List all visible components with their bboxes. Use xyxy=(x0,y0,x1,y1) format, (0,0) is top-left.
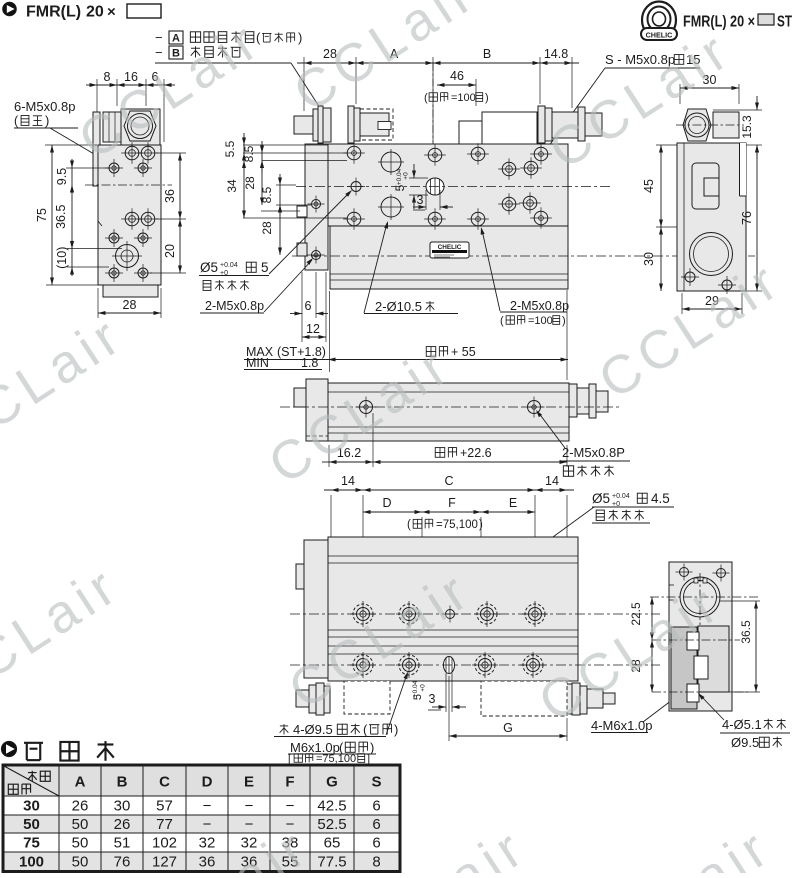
svg-text:127: 127 xyxy=(152,853,177,870)
svg-text:8.5: 8.5 xyxy=(242,145,256,162)
svg-text:28: 28 xyxy=(123,298,137,312)
svg-text:4.5: 4.5 xyxy=(651,491,670,506)
svg-text:C: C xyxy=(159,774,170,791)
svg-text:F: F xyxy=(285,774,294,791)
svg-text:6: 6 xyxy=(372,835,380,852)
svg-text:75: 75 xyxy=(23,835,40,852)
svg-text:): ) xyxy=(45,113,49,128)
svg-text:20: 20 xyxy=(86,4,104,21)
svg-text:57: 57 xyxy=(156,798,173,815)
svg-text:+0.04: +0.04 xyxy=(220,262,238,269)
svg-text:28: 28 xyxy=(243,176,257,190)
svg-text:5.5: 5.5 xyxy=(223,140,237,157)
svg-text:FMR(L): FMR(L) xyxy=(26,4,81,21)
svg-text:26: 26 xyxy=(114,816,131,833)
svg-text:=100: =100 xyxy=(451,92,476,104)
svg-text:−: − xyxy=(155,30,163,45)
svg-text:28: 28 xyxy=(260,221,274,235)
svg-text:ST: ST xyxy=(777,14,792,31)
svg-text:50: 50 xyxy=(72,853,89,870)
svg-text:76: 76 xyxy=(114,853,131,870)
svg-text:[: [ xyxy=(288,753,291,765)
svg-text:20: 20 xyxy=(163,244,177,258)
svg-text:36.5: 36.5 xyxy=(739,620,753,644)
svg-text:CHELIC: CHELIC xyxy=(438,244,462,251)
svg-text:MIN: MIN xyxy=(246,356,269,370)
svg-text:E: E xyxy=(244,774,254,791)
svg-text:52.5: 52.5 xyxy=(317,816,346,833)
svg-text:4-Ø9.5: 4-Ø9.5 xyxy=(293,722,333,737)
svg-text:1.8: 1.8 xyxy=(301,356,318,370)
svg-text:77: 77 xyxy=(156,816,173,833)
svg-text:Ø9.5: Ø9.5 xyxy=(731,735,759,750)
svg-text:+0: +0 xyxy=(420,684,427,692)
svg-text:+ 55: + 55 xyxy=(451,345,476,359)
svg-text:2-Ø10.5: 2-Ø10.5 xyxy=(375,299,422,314)
svg-text:50: 50 xyxy=(23,816,40,833)
svg-text:42.5: 42.5 xyxy=(317,798,346,815)
svg-text:26: 26 xyxy=(72,798,89,815)
svg-text:36: 36 xyxy=(163,189,177,203)
svg-text:2-M5x0.8p: 2-M5x0.8p xyxy=(205,299,264,313)
svg-text:(: ( xyxy=(363,722,368,737)
svg-text:×: × xyxy=(107,4,116,21)
svg-text:]: ] xyxy=(367,753,370,765)
svg-text:FMR(L) 20 ×: FMR(L) 20 × xyxy=(683,14,755,31)
svg-text:2-M5x0.8p: 2-M5x0.8p xyxy=(510,299,569,313)
svg-text:=100: =100 xyxy=(528,315,553,327)
svg-text:3: 3 xyxy=(417,193,424,207)
svg-text:30: 30 xyxy=(642,252,656,266)
svg-text:4-M6x1.0p: 4-M6x1.0p xyxy=(591,718,652,733)
svg-text:Ø5: Ø5 xyxy=(592,491,610,506)
svg-text:76: 76 xyxy=(740,211,754,225)
svg-text:14.8: 14.8 xyxy=(544,47,568,61)
svg-text:6: 6 xyxy=(372,798,380,815)
svg-text:30: 30 xyxy=(23,798,40,815)
svg-text:4-Ø5.1: 4-Ø5.1 xyxy=(722,717,762,732)
svg-text:100: 100 xyxy=(19,853,44,870)
svg-text:14: 14 xyxy=(545,474,559,488)
svg-text:A: A xyxy=(75,774,86,791)
svg-text:): ) xyxy=(562,315,566,327)
svg-text:5: 5 xyxy=(261,260,269,275)
svg-text:): ) xyxy=(485,92,489,104)
svg-text:(: ( xyxy=(424,92,428,104)
svg-text:46: 46 xyxy=(450,69,464,83)
svg-text:9.5: 9.5 xyxy=(55,168,69,185)
svg-text:S: S xyxy=(371,774,381,791)
svg-text:Ø5: Ø5 xyxy=(200,260,218,275)
svg-text:14: 14 xyxy=(341,474,355,488)
svg-text:34: 34 xyxy=(225,179,239,193)
svg-text:50: 50 xyxy=(72,816,89,833)
svg-text:8: 8 xyxy=(104,70,111,84)
svg-text:A: A xyxy=(172,33,180,45)
svg-text:45: 45 xyxy=(642,179,656,193)
svg-text:2-M5x0.8P: 2-M5x0.8P xyxy=(562,445,625,460)
svg-text:D: D xyxy=(202,774,213,791)
svg-text:+0.04: +0.04 xyxy=(612,493,630,500)
svg-text:): ) xyxy=(479,519,483,531)
svg-text:50: 50 xyxy=(72,835,89,852)
svg-text:(: ( xyxy=(500,315,504,327)
svg-text:G: G xyxy=(503,721,513,735)
svg-text:−: − xyxy=(245,816,254,833)
svg-text:102: 102 xyxy=(152,835,177,852)
svg-text:−: − xyxy=(155,45,163,60)
svg-text:12: 12 xyxy=(306,322,320,336)
svg-text:8.5: 8.5 xyxy=(260,186,274,203)
svg-text:+0: +0 xyxy=(403,172,410,180)
svg-text:(: ( xyxy=(407,519,411,531)
svg-text:−: − xyxy=(203,816,212,833)
svg-text:36.5: 36.5 xyxy=(54,205,68,229)
svg-text:): ) xyxy=(394,722,398,737)
svg-text:CHELIC: CHELIC xyxy=(646,31,673,40)
svg-text:+22.6: +22.6 xyxy=(460,446,492,460)
svg-text:+0.04: +0.04 xyxy=(412,680,419,697)
svg-text:77.5: 77.5 xyxy=(317,853,346,870)
svg-text:15.3: 15.3 xyxy=(740,115,754,139)
svg-text:E: E xyxy=(509,496,517,510)
svg-text:8: 8 xyxy=(372,853,380,870)
svg-text:6-M5x0.8p: 6-M5x0.8p xyxy=(14,99,75,114)
svg-text:−: − xyxy=(245,798,254,815)
svg-text:30: 30 xyxy=(114,798,131,815)
svg-text:F: F xyxy=(448,496,456,510)
svg-text:75: 75 xyxy=(35,208,49,222)
svg-text:3: 3 xyxy=(429,692,436,706)
svg-text:+0: +0 xyxy=(220,270,228,277)
svg-text:32: 32 xyxy=(199,835,216,852)
svg-text:(10): (10) xyxy=(55,247,69,269)
svg-text:B: B xyxy=(117,774,128,791)
svg-text:): ) xyxy=(370,740,374,755)
svg-text:): ) xyxy=(298,30,302,45)
svg-text:−: − xyxy=(286,798,295,815)
svg-text:−: − xyxy=(203,798,212,815)
svg-text:6: 6 xyxy=(305,299,312,313)
svg-text:C: C xyxy=(444,474,453,488)
svg-text:65: 65 xyxy=(324,835,341,852)
svg-text:D: D xyxy=(382,496,391,510)
svg-text:B: B xyxy=(483,47,491,61)
svg-text:51: 51 xyxy=(114,835,131,852)
svg-text:6: 6 xyxy=(372,816,380,833)
svg-text:G: G xyxy=(326,774,338,791)
svg-text:=75,100: =75,100 xyxy=(316,753,356,765)
svg-text:=75,100: =75,100 xyxy=(436,519,478,531)
